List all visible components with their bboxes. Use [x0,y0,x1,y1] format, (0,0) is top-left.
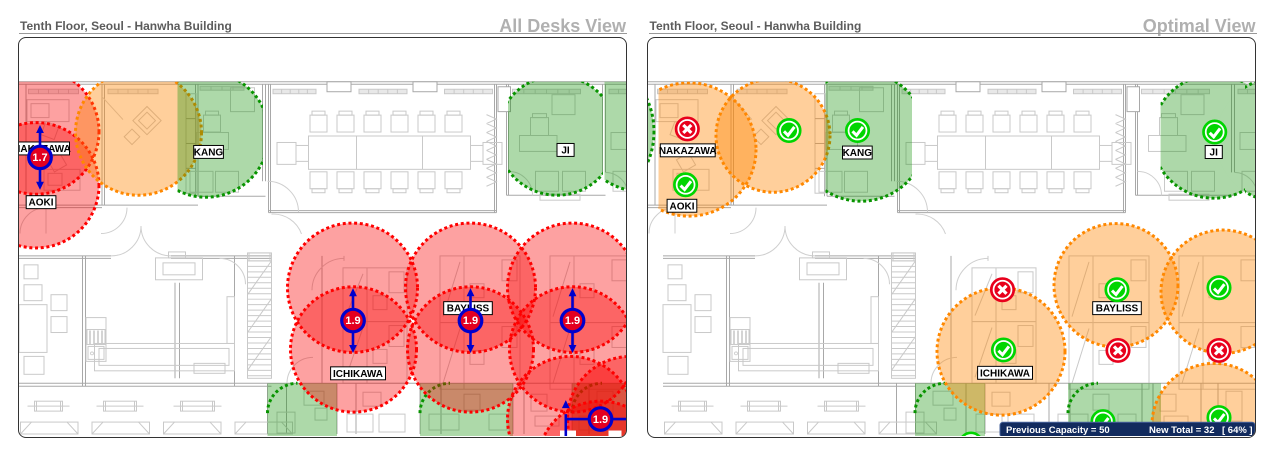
svg-text:KANG: KANG [193,148,223,159]
svg-text:ICHIKAWA: ICHIKAWA [333,369,383,380]
svg-text:1.9: 1.9 [564,315,579,327]
svg-text:JI: JI [561,146,570,157]
svg-text:1.7: 1.7 [32,152,47,164]
svg-text:JI: JI [1210,148,1219,159]
svg-text:New Total = 32: New Total = 32 [1149,425,1215,436]
svg-text:1.9: 1.9 [592,414,607,426]
svg-text:BAYLISS: BAYLISS [1096,304,1139,315]
svg-text:KANG: KANG [843,148,873,159]
svg-text:AOKI: AOKI [670,201,695,212]
svg-text:ICHIKAWA: ICHIKAWA [980,368,1030,379]
svg-text:AOKI: AOKI [28,198,53,209]
svg-text:NAKAZAWA: NAKAZAWA [659,146,717,157]
svg-text:1.9: 1.9 [462,315,477,327]
svg-text:1.9: 1.9 [345,315,360,327]
svg-text:[ 64% ]: [ 64% ] [1222,425,1253,436]
svg-text:Previous Capacity = 50: Previous Capacity = 50 [1006,425,1110,436]
